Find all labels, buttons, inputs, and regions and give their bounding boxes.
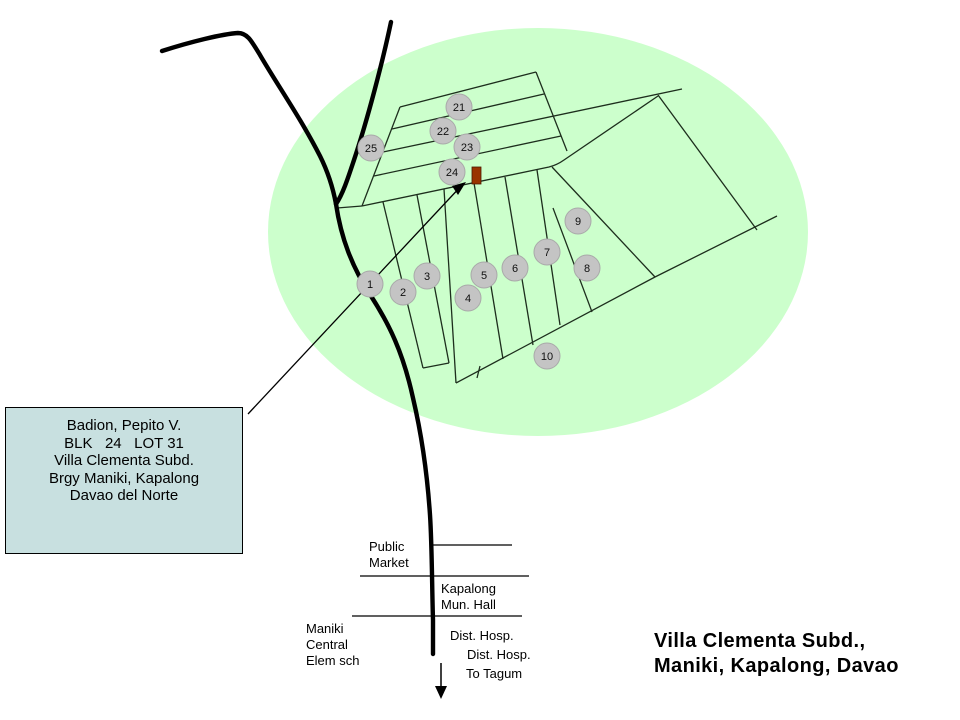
svg-text:3: 3 [424, 271, 430, 283]
block-marker-6: 6 [502, 255, 528, 281]
svg-text:10: 10 [541, 351, 553, 363]
block-marker-1: 1 [357, 271, 383, 297]
location-map-slide: 212223242512345678910 Badion, Pepito V. … [0, 0, 960, 720]
block-marker-22: 22 [430, 118, 456, 144]
block-marker-24: 24 [439, 159, 465, 185]
label-public-market: Public Market [369, 539, 409, 571]
svg-text:24: 24 [446, 167, 458, 179]
svg-text:8: 8 [584, 263, 590, 275]
label-elementary-school: Maniki Central Elem sch [306, 621, 359, 669]
label-district-hospital-lower: Dist. Hosp. [467, 647, 531, 663]
block-marker-7: 7 [534, 239, 560, 265]
svg-text:7: 7 [544, 247, 550, 259]
svg-text:25: 25 [365, 143, 377, 155]
block-marker-4: 4 [455, 285, 481, 311]
subdivision-area-ellipse [268, 28, 808, 436]
block-marker-9: 9 [565, 208, 591, 234]
block-marker-3: 3 [414, 263, 440, 289]
lot-location-marker [472, 167, 481, 184]
owner-info-box: Badion, Pepito V. BLK 24 LOT 31 Villa Cl… [5, 407, 243, 554]
svg-text:5: 5 [481, 270, 487, 282]
svg-text:2: 2 [400, 287, 406, 299]
block-marker-23: 23 [454, 134, 480, 160]
svg-text:4: 4 [465, 293, 471, 305]
svg-text:9: 9 [575, 216, 581, 228]
svg-text:1: 1 [367, 279, 373, 291]
block-marker-25: 25 [358, 135, 384, 161]
block-marker-5: 5 [471, 262, 497, 288]
svg-text:23: 23 [461, 142, 473, 154]
to-tagum-arrow [435, 663, 447, 699]
svg-text:22: 22 [437, 126, 449, 138]
block-marker-2: 2 [390, 279, 416, 305]
svg-text:6: 6 [512, 263, 518, 275]
block-marker-21: 21 [446, 94, 472, 120]
map-title: Villa Clementa Subd., Maniki, Kapalong, … [654, 629, 899, 679]
label-to-tagum: To Tagum [466, 666, 522, 682]
block-marker-10: 10 [534, 343, 560, 369]
label-district-hospital-upper: Dist. Hosp. [450, 628, 514, 644]
svg-text:21: 21 [453, 102, 465, 114]
label-municipal-hall: Kapalong Mun. Hall [441, 581, 496, 613]
block-marker-8: 8 [574, 255, 600, 281]
